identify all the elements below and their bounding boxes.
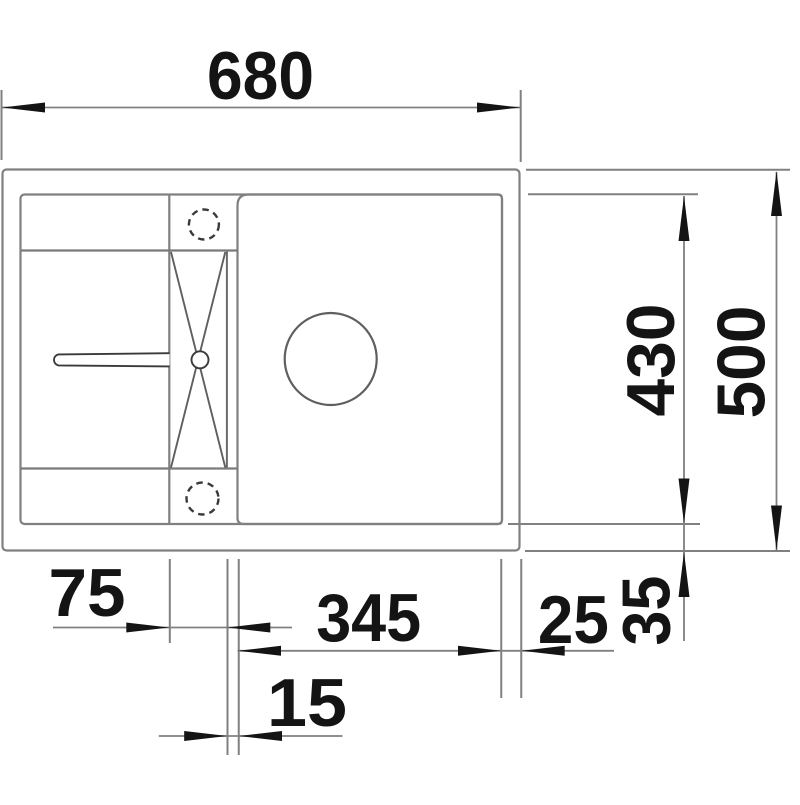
svg-text:430: 430 — [613, 304, 689, 417]
svg-text:500: 500 — [704, 306, 780, 419]
svg-text:15: 15 — [267, 665, 347, 741]
svg-text:345: 345 — [316, 580, 421, 656]
svg-text:75: 75 — [49, 555, 126, 631]
svg-text:35: 35 — [609, 576, 685, 646]
svg-text:680: 680 — [207, 38, 314, 114]
svg-text:25: 25 — [538, 582, 609, 658]
